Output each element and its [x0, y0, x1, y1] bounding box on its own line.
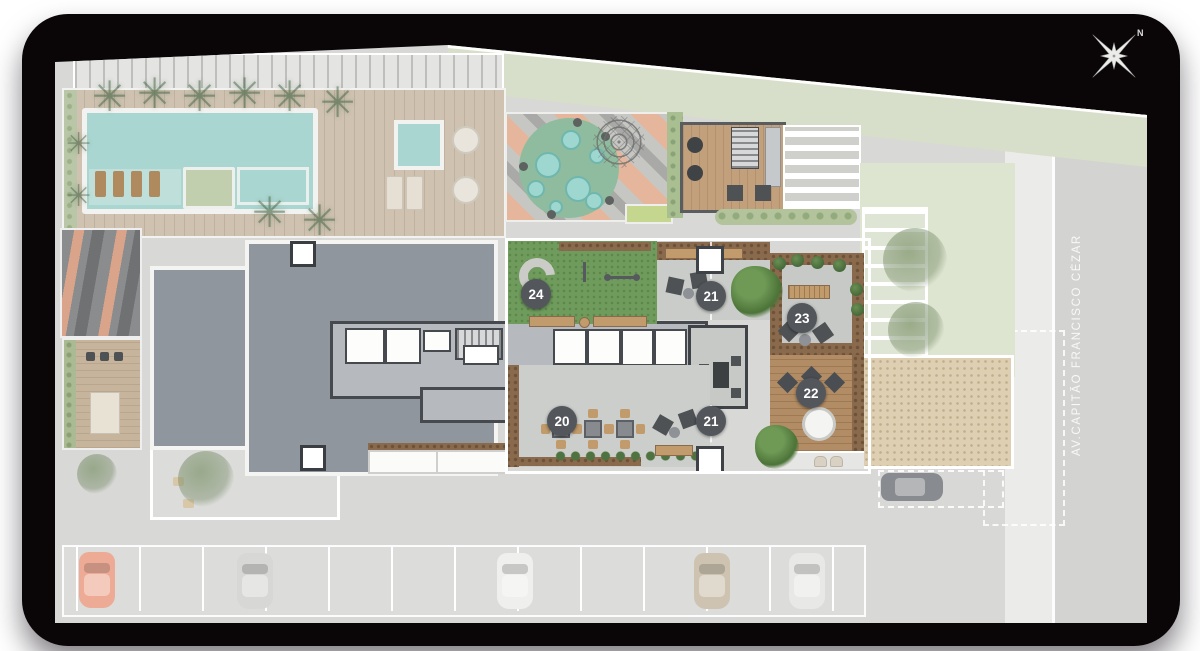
hedge-strip [64, 90, 77, 236]
car-icon [881, 473, 943, 501]
seat-icon [830, 456, 843, 467]
chair-icon [588, 440, 598, 449]
palm-tree-icon: ✳ [252, 192, 287, 234]
car-icon [789, 553, 825, 609]
room [553, 329, 587, 365]
sun-lounger-icon [406, 176, 423, 210]
tree-icon [178, 451, 234, 507]
marker-23[interactable]: 23 [787, 303, 817, 333]
table-set-icon [452, 126, 480, 154]
plunge-pool [394, 120, 444, 170]
shrub-icon [833, 259, 846, 272]
table-icon [616, 420, 634, 438]
planter-strip [852, 355, 864, 451]
pool-deck: ✳ ✳ ✳ ✳ ✳ ✳ ✳ ✳ ✳ ✳ [62, 88, 506, 238]
play-ball-icon [585, 192, 603, 210]
lounge-chair-icon [666, 277, 685, 296]
palm-tree-icon: ✳ [182, 76, 217, 118]
service-rooms [368, 450, 509, 474]
in-pool-lounger-icon [131, 171, 142, 197]
chair-icon [114, 352, 123, 361]
wall-divider [436, 452, 438, 472]
tree-icon [755, 425, 799, 469]
marker-21[interactable]: 21 [696, 406, 726, 436]
chair-icon [731, 388, 741, 398]
bench [529, 316, 575, 327]
hedge-row [715, 209, 857, 225]
chair-icon [620, 409, 630, 418]
tree-icon [888, 302, 944, 358]
square-table-icon [727, 185, 743, 201]
round-table-icon [687, 137, 703, 153]
column [696, 246, 724, 274]
shrub-icon [547, 210, 556, 219]
chair-icon [620, 440, 630, 449]
marker-20[interactable]: 20 [547, 406, 577, 436]
in-pool-lounger-icon [113, 171, 124, 197]
playground [505, 112, 671, 222]
street-name-label: AV.CAPITÃO FRANCISCO CÉZAR [1071, 185, 1101, 505]
grill-counter [765, 127, 781, 187]
wood-deck-nook [62, 338, 142, 450]
palm-tree-icon: ✳ [302, 200, 337, 242]
sun-lounger-icon [386, 176, 403, 210]
planted-island [183, 167, 235, 209]
shrub-icon [811, 256, 824, 269]
table-icon [713, 362, 729, 388]
restroom [654, 329, 687, 366]
marker-24[interactable]: 24 [521, 279, 551, 309]
shrub-icon [605, 196, 614, 205]
compass-north-label: N [1137, 28, 1144, 38]
shrub-icon [573, 118, 582, 127]
chair-icon [731, 356, 741, 366]
chair-icon [636, 424, 645, 434]
gourmet-deck [680, 122, 786, 213]
chair-icon [556, 440, 566, 449]
round-table-icon [683, 288, 694, 299]
slat-bench [788, 285, 830, 299]
round-table-icon [799, 334, 811, 346]
table-set-icon [452, 176, 480, 204]
marker-21[interactable]: 21 [696, 281, 726, 311]
chair-icon [605, 424, 614, 434]
column [696, 446, 724, 474]
garden-terrace [770, 253, 864, 355]
palm-tree-icon: ✳ [92, 76, 127, 118]
shrub-icon [519, 162, 528, 171]
marker-22[interactable]: 22 [796, 378, 826, 408]
bench [655, 445, 693, 456]
chair-icon [588, 409, 598, 418]
rug [90, 392, 120, 434]
bench [593, 316, 647, 327]
table-icon [584, 420, 602, 438]
chair-icon [86, 352, 95, 361]
palm-tree-icon: ✳ [137, 73, 172, 115]
tree-icon [77, 454, 117, 494]
shrub-icon [773, 257, 786, 270]
palm-tree-icon: ✳ [66, 182, 91, 212]
room [587, 329, 621, 365]
hedge-strip [64, 340, 76, 448]
in-pool-lounger-icon [95, 171, 106, 197]
shrub-icon [851, 303, 864, 316]
barbell-icon [607, 276, 637, 279]
dining-table-set [605, 409, 645, 449]
palm-tree-icon: ✳ [227, 73, 262, 115]
square-table-icon [755, 185, 771, 201]
planter-strip [559, 242, 651, 251]
climbing-dome-icon [593, 116, 645, 168]
car-icon [79, 552, 115, 608]
pergola-slats [783, 125, 861, 209]
tree-icon [731, 266, 783, 318]
play-ball-icon [561, 130, 581, 150]
stairs [731, 127, 759, 169]
chair-icon [100, 352, 109, 361]
round-fire-table [802, 407, 836, 441]
master-plan: ✳ ✳ ✳ ✳ ✳ ✳ ✳ ✳ ✳ ✳ [55, 35, 1147, 623]
car-roof [895, 478, 925, 496]
side-table-icon [579, 317, 590, 328]
column [300, 445, 326, 471]
site-plan-screenshot: ✳ ✳ ✳ ✳ ✳ ✳ ✳ ✳ ✳ ✳ [0, 0, 1200, 651]
palm-tree-icon: ✳ [320, 82, 355, 124]
shrub-icon [791, 254, 804, 267]
car-icon [497, 553, 533, 609]
car-icon [694, 553, 730, 609]
parking-stall-lines [76, 547, 852, 611]
lounge-chair-icon [777, 372, 798, 393]
room [423, 330, 451, 352]
access-ramp [60, 228, 142, 338]
play-ball-icon [527, 180, 545, 198]
tree-icon [883, 228, 947, 292]
bench [625, 204, 673, 224]
palm-tree-icon: ✳ [66, 130, 91, 160]
fitness-equipment-icon [583, 262, 586, 282]
planter-strip [368, 443, 505, 450]
room [345, 328, 385, 364]
room [385, 328, 421, 364]
shrub-icon [850, 283, 863, 296]
play-ball-icon [535, 152, 561, 178]
elevator [463, 345, 499, 365]
sand-area [860, 355, 1014, 469]
round-table-icon [687, 165, 703, 181]
bench [665, 248, 697, 259]
street [1055, 97, 1147, 623]
car-icon [237, 553, 273, 609]
restroom [621, 329, 654, 366]
column [290, 241, 316, 267]
parking-row [62, 545, 866, 617]
palm-tree-icon: ✳ [272, 76, 307, 118]
seat-icon [814, 456, 827, 467]
planter-strip [505, 365, 519, 467]
outdoor-dining-terrace [505, 365, 710, 467]
round-table-icon [669, 427, 680, 438]
lounge-chair-icon [824, 372, 845, 393]
in-pool-lounger-icon [149, 171, 160, 197]
